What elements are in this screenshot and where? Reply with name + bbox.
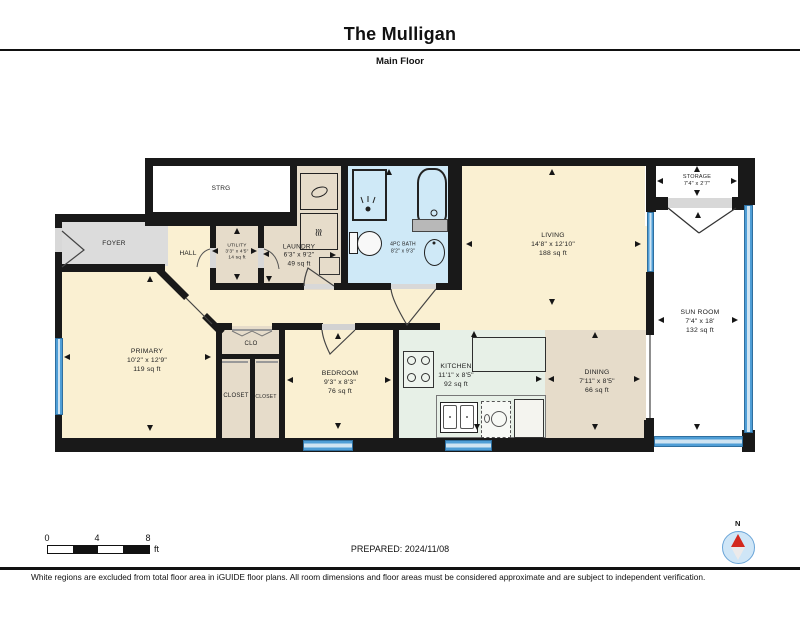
room-label-kitchen: KITCHEN 11'1" x 8'5" 92 sq ft — [438, 363, 473, 389]
dimension-arrow — [732, 317, 738, 323]
room-name: CLOSET — [223, 393, 248, 401]
room-dims: 7'11" x 8'5" — [579, 378, 614, 387]
room-label-clo: CLO — [245, 341, 258, 349]
showerhead-icon — [366, 207, 371, 212]
dimension-arrow — [234, 228, 240, 234]
compass-dial — [722, 531, 755, 564]
dimension-arrow — [335, 423, 341, 429]
room-area: 49 sq ft — [283, 260, 315, 268]
room-name: UTILITY — [225, 243, 248, 249]
room-label-bedroom: BEDROOM 9'3" x 8'3" 76 sq ft — [322, 370, 359, 396]
dimension-arrow — [212, 248, 218, 254]
room-dims: 10'2" x 12'9" — [127, 357, 167, 366]
dimension-arrow — [385, 377, 391, 383]
room-label-foyer: FOYER — [102, 240, 125, 248]
room-label-closet-left: CLOSET — [223, 393, 248, 401]
disclaimer-text: White regions are excluded from total fl… — [31, 572, 705, 582]
room-dims: 14'8" x 12'10" — [531, 241, 575, 250]
room-name: DINING — [579, 369, 614, 378]
room-dims: 6'3" x 9'2" — [283, 252, 315, 260]
dimension-arrow — [694, 166, 700, 172]
room-dims: 8'2" x 9'3" — [390, 248, 416, 255]
room-name: HALL — [179, 250, 196, 258]
scale-tick: 4 — [94, 533, 99, 543]
dimension-arrow — [731, 178, 737, 184]
dimension-arrow — [474, 424, 480, 430]
room-label-sunroom: SUN ROOM 7'4" x 18' 132 sq ft — [681, 309, 720, 335]
dimension-arrow — [536, 376, 542, 382]
room-area: 92 sq ft — [438, 380, 473, 389]
compass-needle-north — [731, 534, 745, 547]
dimension-arrow — [592, 332, 598, 338]
room-label-bath: 4PC BATH 8'2" x 9'3" — [390, 242, 416, 255]
dimension-arrow — [263, 251, 269, 257]
room-name: BEDROOM — [322, 370, 359, 379]
dimension-arrow — [205, 354, 211, 360]
room-area: 66 sq ft — [579, 386, 614, 395]
room-name: KITCHEN — [438, 363, 473, 372]
dimension-arrow — [466, 241, 472, 247]
room-label-hall: HALL — [179, 250, 196, 258]
dimension-arrow — [147, 425, 153, 431]
dimension-arrow — [386, 169, 392, 175]
room-name: LIVING — [531, 232, 575, 241]
dimension-arrow — [634, 376, 640, 382]
dimension-arrow — [549, 169, 555, 175]
room-label-living: LIVING 14'8" x 12'10" 188 sq ft — [531, 232, 575, 258]
room-dims: 3'3" x 4'5" — [225, 249, 248, 255]
room-name: LAUNDRY — [283, 243, 315, 251]
floor-plan-page: The Mulligan Main Floor — [0, 0, 800, 618]
dimension-arrow — [694, 424, 700, 430]
room-dims: 9'3" x 8'3" — [322, 379, 359, 388]
floor-plan: ≋ — [0, 0, 800, 618]
dimension-arrow — [266, 276, 272, 282]
compass: N — [722, 519, 762, 567]
shower-spray-icon — [361, 196, 375, 203]
room-name: STORAGE — [683, 174, 711, 181]
dimension-arrow — [64, 354, 70, 360]
closet-bifold-door — [232, 331, 272, 336]
dimension-arrow — [251, 248, 257, 254]
room-name: STRG — [212, 185, 231, 193]
prepared-date: PREPARED: 2024/11/08 — [0, 544, 800, 554]
room-name: SUN ROOM — [681, 309, 720, 318]
room-area: 132 sq ft — [681, 326, 720, 335]
footer-divider — [0, 567, 800, 570]
room-name: CLOSET — [255, 394, 276, 401]
dimension-arrow — [330, 252, 336, 258]
room-area: 76 sq ft — [322, 387, 359, 396]
room-label-strg: STRG — [212, 185, 231, 193]
scale-tick: 0 — [44, 533, 49, 543]
dimension-arrow — [335, 333, 341, 339]
room-name: FOYER — [102, 240, 125, 248]
room-label-laundry: LAUNDRY 6'3" x 9'2" 49 sq ft — [283, 243, 315, 268]
french-door — [699, 208, 736, 233]
dimension-arrow — [695, 212, 701, 218]
sink-faucet-icon — [433, 242, 436, 245]
entry-door — [62, 231, 84, 267]
room-label-primary: PRIMARY 10'2" x 12'9" 119 sq ft — [127, 348, 167, 374]
room-name: PRIMARY — [127, 348, 167, 357]
dimension-arrow — [657, 178, 663, 184]
dimension-arrow — [635, 241, 641, 247]
compass-north-label: N — [735, 519, 740, 528]
room-area: 188 sq ft — [531, 249, 575, 258]
room-area: 14 sq ft — [225, 255, 248, 261]
dimension-arrow — [548, 376, 554, 382]
room-dims: 7'4" x 2'7" — [683, 181, 711, 188]
dimension-arrow — [658, 317, 664, 323]
room-dims: 11'1" x 8'5" — [438, 372, 473, 381]
dimension-arrow — [471, 331, 477, 337]
room-label-closet-right: CLOSET — [255, 394, 276, 401]
room-label-storage: STORAGE 7'4" x 2'7" — [683, 174, 711, 188]
room-name: CLO — [245, 341, 258, 349]
dimension-arrow — [147, 276, 153, 282]
dimension-arrow — [549, 299, 555, 305]
dimension-arrow — [287, 377, 293, 383]
room-name: 4PC BATH — [390, 242, 416, 249]
dimension-arrow — [694, 190, 700, 196]
scale-tick: 8 — [145, 533, 150, 543]
room-dims: 7'4" x 18' — [681, 318, 720, 327]
room-label-utility: UTILITY 3'3" x 4'5" 14 sq ft — [225, 243, 248, 260]
room-area: 119 sq ft — [127, 365, 167, 374]
dimension-arrow — [592, 424, 598, 430]
utility-door — [197, 249, 210, 267]
tub-faucet-icon — [431, 210, 437, 216]
room-label-dining: DINING 7'11" x 8'5" 66 sq ft — [579, 369, 614, 395]
primary-door — [186, 298, 212, 324]
laundry-door — [304, 268, 334, 286]
bath-door — [391, 289, 436, 325]
dimension-arrow — [234, 274, 240, 280]
compass-needle-south — [731, 547, 745, 560]
